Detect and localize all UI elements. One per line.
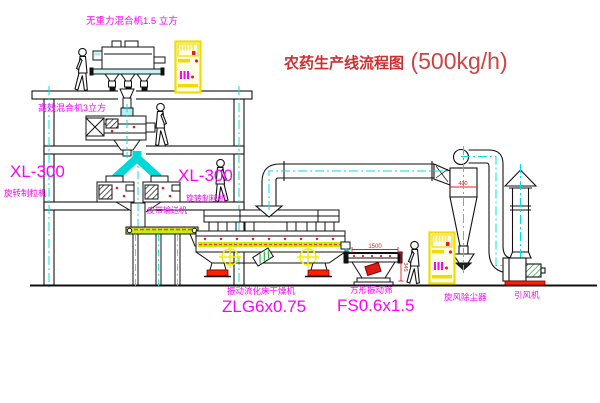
label-sieve-name: 方形振动筛 [350,285,393,295]
belt-conveyor [126,227,203,287]
fluid-bed-dryer [196,210,355,277]
label-fan-name: 引风机 [514,290,540,300]
pesticide-line-flow-diagram: 农药生产线流程图 (500kg/h) 无重力混合机1.5 立方 高效混合机3立方… [0,0,600,403]
rotary-granulator-right [143,182,180,202]
y-chute [106,151,168,182]
person-figure [156,103,168,145]
diagram-title: 农药生产线流程图 (500kg/h) [283,48,508,74]
label-dryer-model: ZLG6x0.75 [222,297,306,316]
label-granulator-model-right: XL-300 [178,166,233,185]
mixer-discharge-hoppers [105,74,151,90]
label-cyclone-name: 旋风除尘器 [444,292,487,302]
label-belt-conveyor: 皮带输送机 [147,205,187,215]
square-sieve [344,247,404,285]
label-granulator-name-right: 旋转制粒机 [186,193,226,203]
label-dryer-name: 振动流化床干燥机 [227,286,296,296]
label-mid-mixer: 高效混合机3立方 [38,102,106,113]
control-cabinet-top [176,42,201,93]
label-granulator-name-left: 旋转制粒机 [4,188,47,198]
roof-slab [32,91,252,99]
label-top-mixer: 无重力混合机1.5 立方 [86,15,178,27]
dim-cyclone-inlet: 400 [458,181,467,187]
label-granulator-model-left: XL-300 [10,162,65,181]
label-sieve-model: FS0.6x1.5 [337,296,415,315]
dim-sieve-width: 1500 [368,244,382,250]
exhaust-duct [256,161,450,217]
dryer-top-stubs [209,222,334,231]
control-cabinet-ground [430,233,455,284]
diagram-canvas: 农药生产线流程图 (500kg/h) 无重力混合机1.5 立方 高效混合机3立方… [0,0,600,403]
person-figure [75,48,87,90]
rotary-granulator-left [97,182,134,202]
dim-sieve-height: 345 [402,262,408,271]
induced-draft-fan [503,258,545,285]
